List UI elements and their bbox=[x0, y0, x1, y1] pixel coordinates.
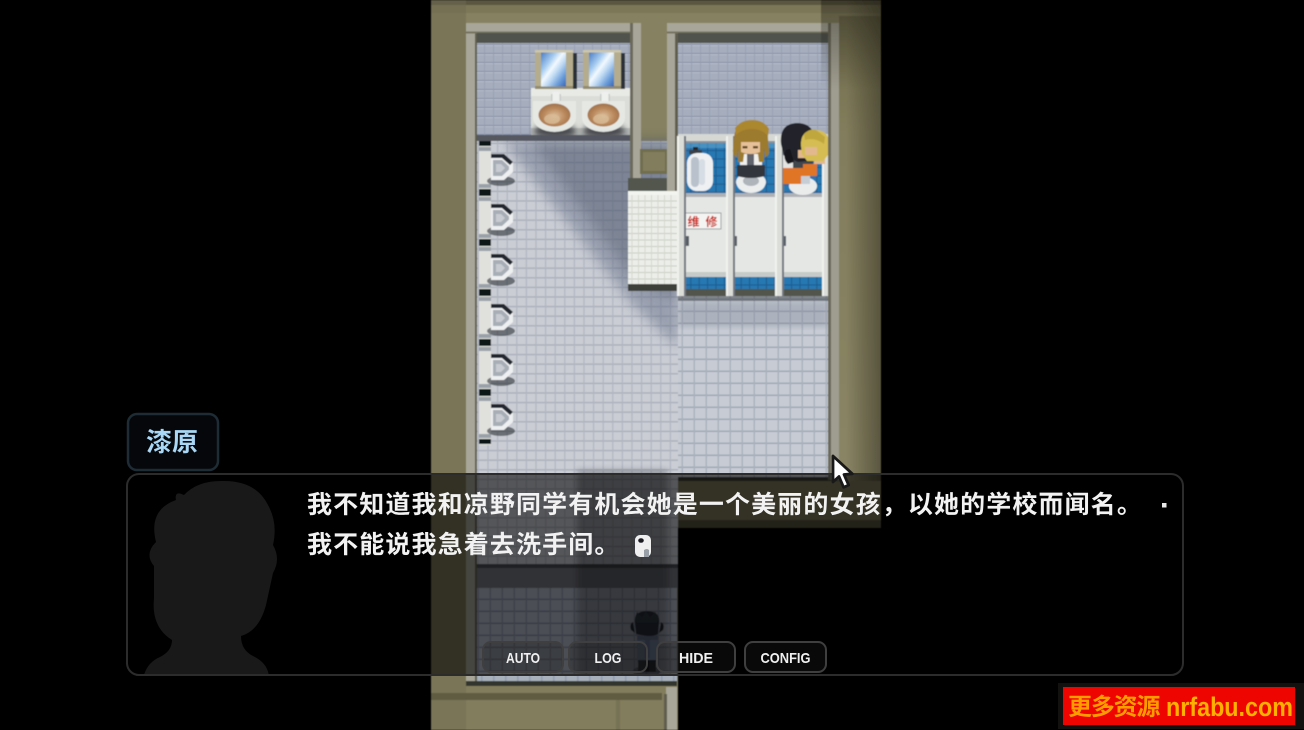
svg-text:CONFIG: CONFIG bbox=[761, 650, 811, 667]
svg-text:nrfabu.com: nrfabu.com bbox=[1166, 692, 1293, 722]
svg-text:LOG: LOG bbox=[595, 650, 622, 667]
svg-text:AUTO: AUTO bbox=[506, 650, 540, 667]
svg-text:HIDE: HIDE bbox=[679, 650, 713, 667]
